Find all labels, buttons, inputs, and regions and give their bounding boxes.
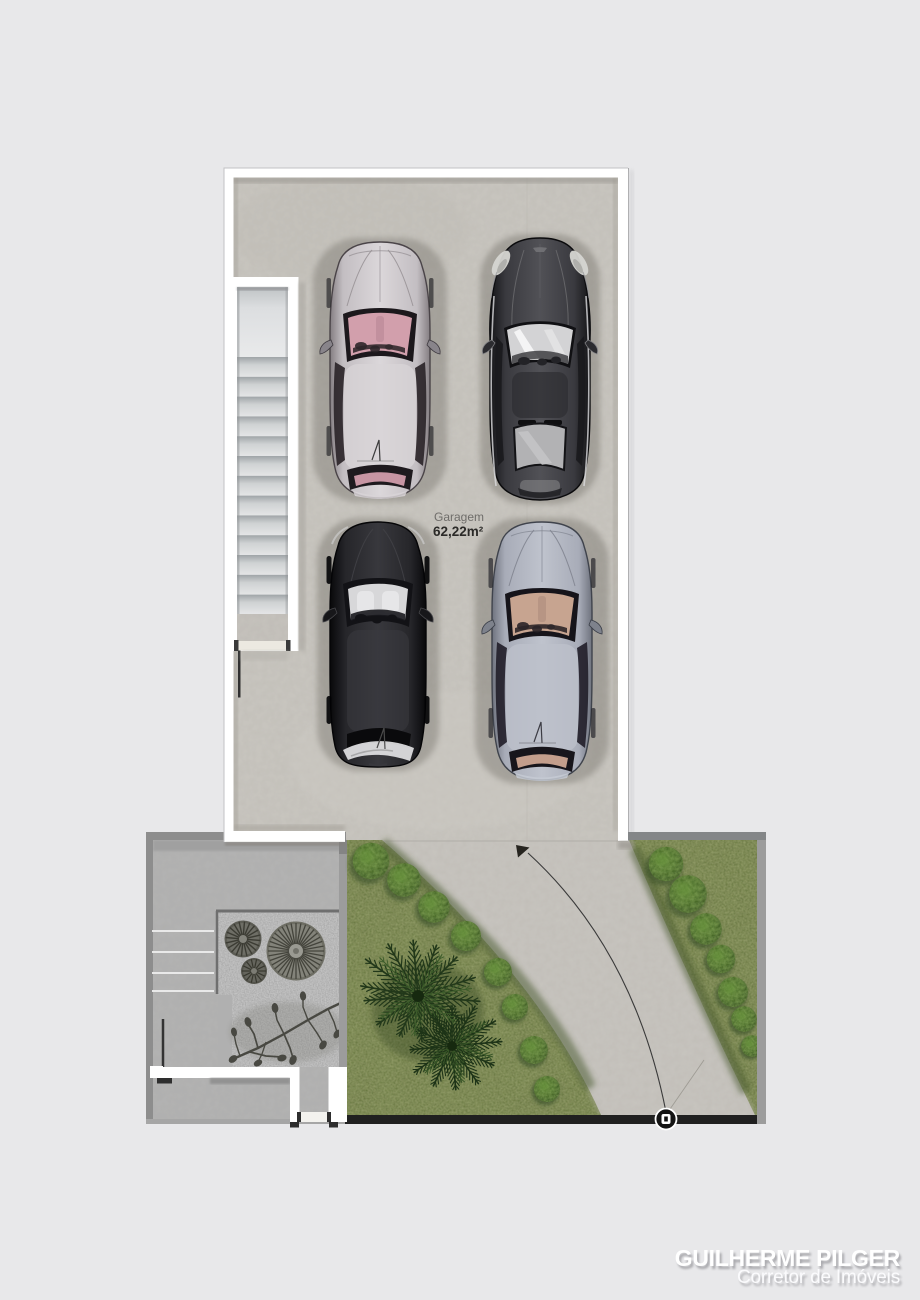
svg-text:Garagem: Garagem bbox=[434, 510, 484, 524]
svg-text:62,22m²: 62,22m² bbox=[433, 524, 484, 539]
svg-text:Corretor de Imóveis: Corretor de Imóveis bbox=[737, 1267, 900, 1288]
